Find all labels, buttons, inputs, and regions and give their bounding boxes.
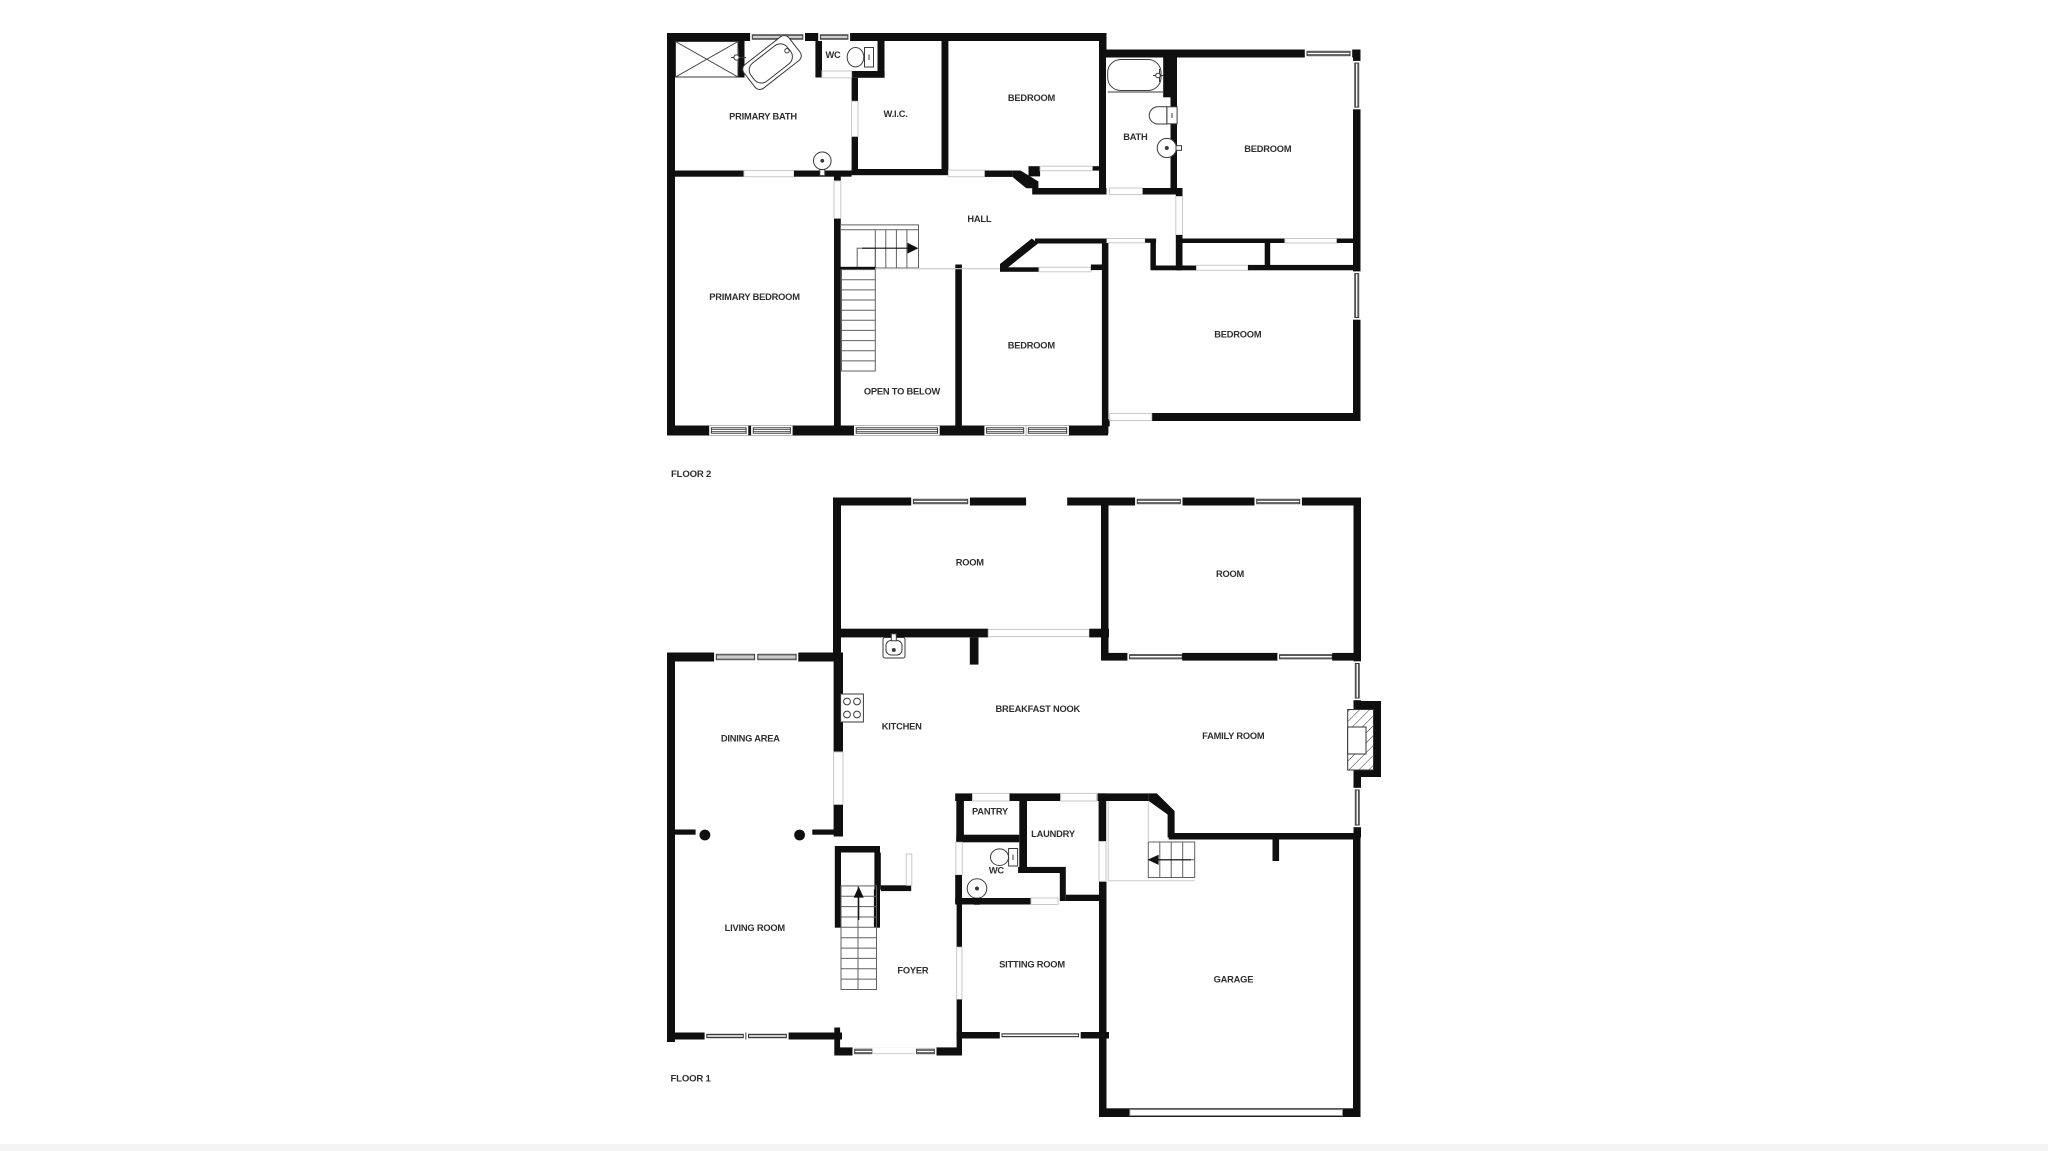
svg-text:BEDROOM: BEDROOM [1008, 341, 1056, 351]
svg-text:LIVING ROOM: LIVING ROOM [725, 923, 786, 933]
svg-text:WC: WC [989, 866, 1005, 876]
svg-text:BEDROOM: BEDROOM [1214, 330, 1262, 340]
svg-text:DINING AREA: DINING AREA [721, 734, 780, 744]
svg-text:ROOM: ROOM [1216, 569, 1245, 579]
svg-text:SITTING ROOM: SITTING ROOM [999, 960, 1065, 970]
svg-text:GARAGE: GARAGE [1214, 975, 1254, 985]
svg-text:PANTRY: PANTRY [972, 807, 1009, 817]
svg-text:PRIMARY BEDROOM: PRIMARY BEDROOM [709, 292, 800, 302]
svg-text:BEDROOM: BEDROOM [1008, 93, 1056, 103]
svg-text:FOYER: FOYER [897, 965, 929, 975]
svg-text:WC: WC [825, 50, 841, 60]
svg-text:BATH: BATH [1123, 132, 1148, 142]
svg-text:HALL: HALL [967, 214, 992, 224]
svg-text:KITCHEN: KITCHEN [882, 722, 922, 732]
svg-text:FAMILY ROOM: FAMILY ROOM [1202, 731, 1265, 741]
svg-text:FLOOR 2: FLOOR 2 [671, 469, 711, 480]
svg-text:W.I.C.: W.I.C. [884, 109, 908, 119]
svg-text:ROOM: ROOM [956, 558, 985, 568]
svg-text:OPEN TO BELOW: OPEN TO BELOW [864, 387, 941, 397]
svg-text:FLOOR 1: FLOOR 1 [671, 1073, 712, 1084]
svg-text:PRIMARY BATH: PRIMARY BATH [729, 112, 797, 122]
svg-text:BREAKFAST NOOK: BREAKFAST NOOK [996, 704, 1081, 714]
svg-text:BEDROOM: BEDROOM [1244, 144, 1292, 154]
svg-text:LAUNDRY: LAUNDRY [1031, 829, 1076, 839]
